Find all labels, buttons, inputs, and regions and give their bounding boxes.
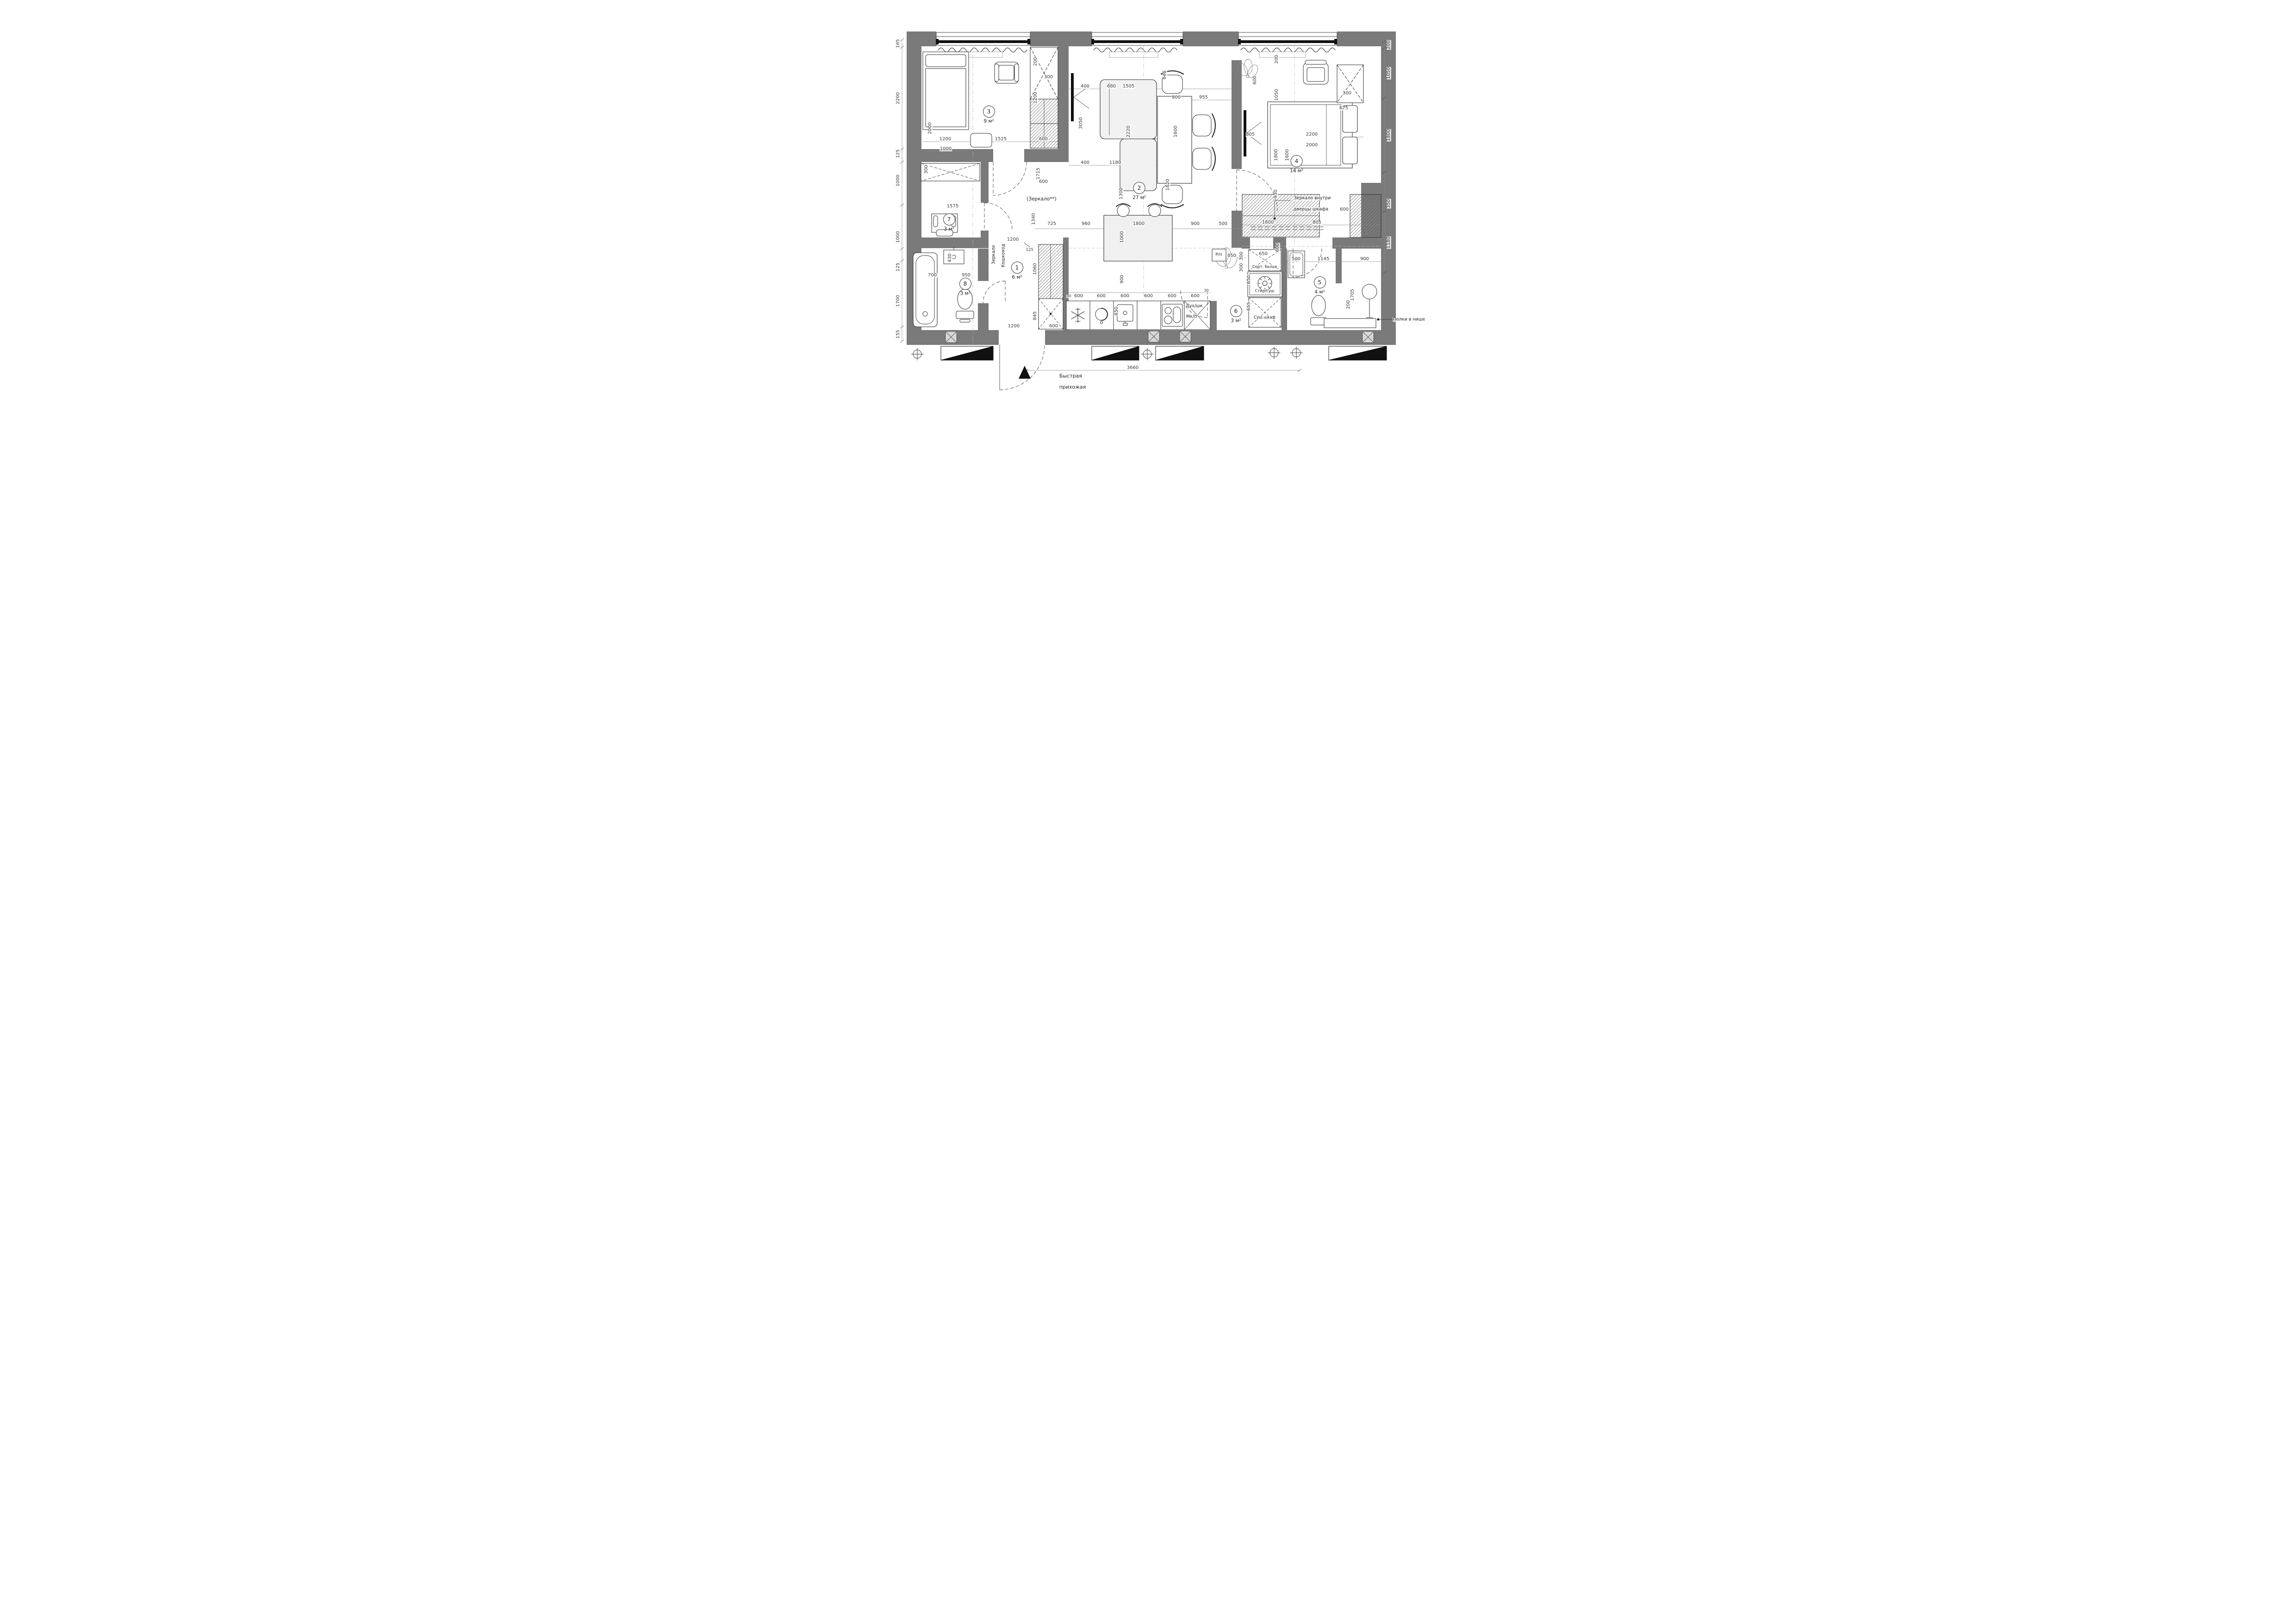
dining-table [1157,96,1192,183]
hall-wardrobe [1039,244,1063,329]
floor-plan-page: 1652200125100010001251700155200105018003… [861,0,1435,406]
bathtub [913,253,937,327]
window-sill-blocks [941,346,1387,360]
windows [936,32,1337,57]
bath-sink [944,247,964,264]
room3-wardrobe [1030,47,1058,148]
room3-bed [923,52,992,147]
toilet-bath8 [956,289,974,322]
room4-wardrobe-top [1337,65,1363,103]
tv-bedroom-icon [1244,110,1261,156]
room4-wardrobe-row [1242,194,1381,237]
bar-stools [1116,204,1162,217]
entry-arrow-icon [1019,366,1031,379]
pedestal-sink [1362,284,1377,320]
room4-bed [1268,102,1357,168]
tv-living-icon [1071,73,1089,121]
kitchen-island [1104,215,1172,261]
radiator-icon [956,52,1306,57]
sofa [1100,80,1157,191]
room7-shelf [921,163,980,181]
curtain-icon [938,48,1335,52]
shower-tray [1288,251,1305,278]
room3-armchair [995,62,1019,83]
laundry-column [1212,249,1282,327]
kitchen-cabinets [1066,301,1210,330]
room7-bench [932,214,958,236]
washer-dryer-icon [1248,272,1282,297]
floor-plan-drawing [861,0,1435,406]
room4-armchair [1303,60,1328,84]
